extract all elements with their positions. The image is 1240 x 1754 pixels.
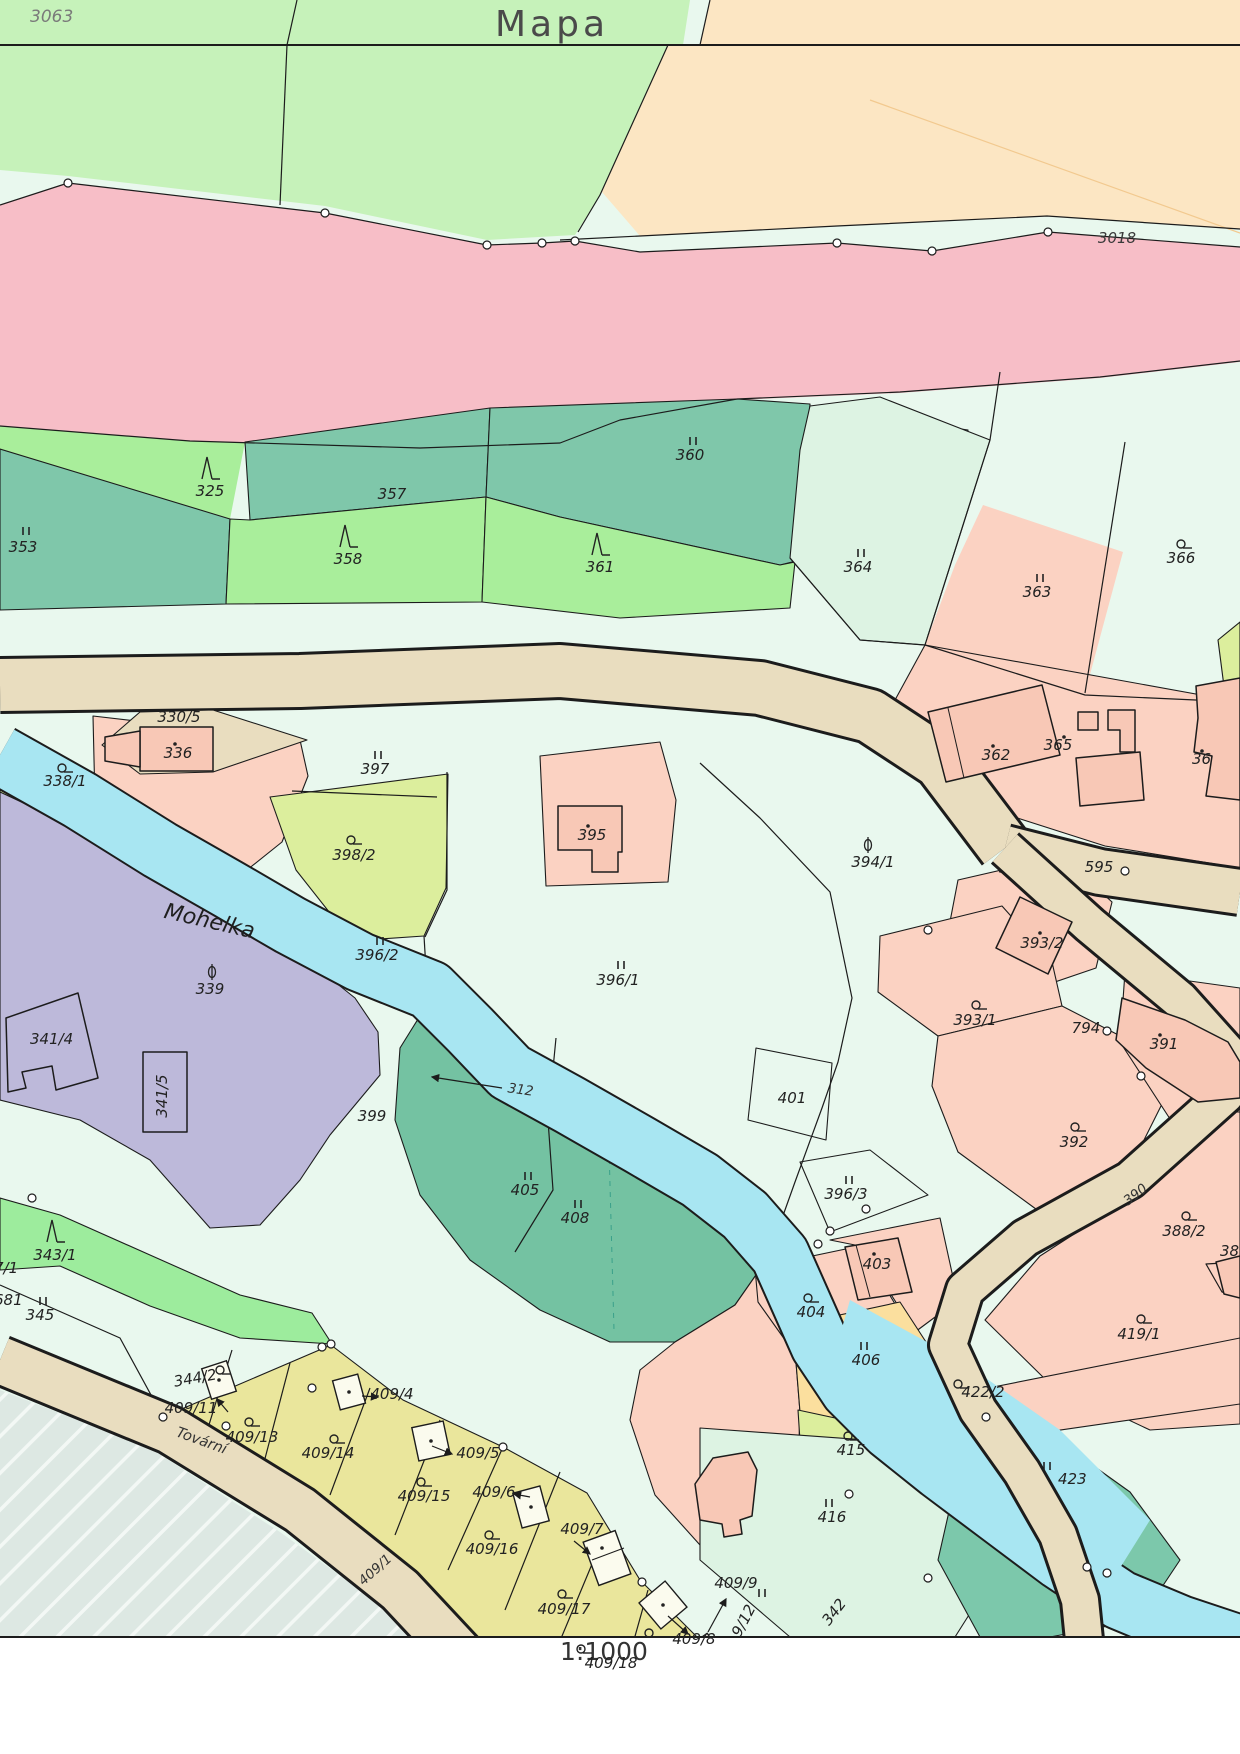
label-36: 36 bbox=[1192, 749, 1211, 768]
label-388: 388 bbox=[1220, 1242, 1240, 1260]
label-text: 409/5 bbox=[456, 1444, 499, 1462]
label-text: 404 bbox=[797, 1303, 826, 1321]
label-text: 409/4 bbox=[370, 1385, 413, 1403]
label-text: 409/7 bbox=[560, 1520, 604, 1538]
label-text: 409/8 bbox=[672, 1630, 715, 1648]
label-330-5: 330/5 bbox=[157, 708, 200, 726]
label-text: 365 bbox=[1044, 736, 1073, 754]
label-text: 401 bbox=[778, 1089, 807, 1107]
label-391: 391 bbox=[1150, 1033, 1179, 1053]
label-text: 396/1 bbox=[596, 971, 639, 989]
label-text: 338/1 bbox=[43, 772, 86, 790]
label-text: 341/4 bbox=[30, 1030, 73, 1048]
cadastral-map-sheet: 3063Mapa30181:10003533253573583603613643… bbox=[0, 0, 1240, 1754]
label-395: 395 bbox=[578, 824, 607, 844]
label-357: 357 bbox=[378, 485, 407, 503]
label-text: 408 bbox=[561, 1209, 590, 1227]
label-text: 595 bbox=[1085, 858, 1114, 876]
label-text: 391 bbox=[1150, 1035, 1179, 1053]
label-Mapa: Mapa bbox=[495, 4, 609, 45]
label-text: 396/3 bbox=[824, 1185, 867, 1203]
label-text: 409/15 bbox=[398, 1487, 451, 1505]
label-399: 399 bbox=[358, 1107, 387, 1125]
label-336: 336 bbox=[164, 742, 193, 762]
label-text: 357 bbox=[378, 485, 407, 503]
label-text: 343/1 bbox=[33, 1246, 76, 1264]
label-text: 361 bbox=[586, 558, 615, 576]
label-text: 325 bbox=[196, 482, 225, 500]
label-409-5: 409/5 bbox=[456, 1444, 499, 1462]
label-text: 363 bbox=[1023, 583, 1052, 601]
label-341-4: 341/4 bbox=[30, 1030, 73, 1048]
building-336-annex bbox=[105, 731, 140, 767]
label-text: 394/1 bbox=[851, 853, 894, 871]
label-text: 409/6 bbox=[472, 1483, 515, 1501]
label-409-7: 409/7 bbox=[560, 1520, 604, 1538]
label-7-1: 7/1 bbox=[0, 1259, 18, 1277]
label-text: 422/2 bbox=[961, 1383, 1004, 1401]
label-text: 341/5 bbox=[153, 1074, 171, 1117]
label-409-6: 409/6 bbox=[472, 1483, 515, 1501]
label-409-9: 409/9 bbox=[714, 1574, 757, 1592]
label-text: 7/1 bbox=[0, 1259, 18, 1277]
label-text: 409/13 bbox=[226, 1428, 279, 1446]
label-text: 681 bbox=[0, 1291, 23, 1309]
label-text: 388 bbox=[1220, 1242, 1240, 1260]
label-text: 358 bbox=[334, 550, 363, 568]
label-text: 403 bbox=[863, 1255, 892, 1273]
map-canvas: 3063Mapa30181:10003533253573583603613643… bbox=[0, 0, 1240, 1754]
label-text: 393/1 bbox=[953, 1011, 996, 1029]
label-393-2: 393/2 bbox=[1020, 931, 1063, 952]
label-text: 419/1 bbox=[1117, 1325, 1160, 1343]
label-text: 423 bbox=[1058, 1470, 1087, 1488]
label-text: 409/16 bbox=[466, 1540, 519, 1558]
label-text: 336 bbox=[164, 744, 193, 762]
label-text: 396/2 bbox=[355, 946, 398, 964]
building-365a bbox=[1078, 712, 1098, 730]
label-text: 366 bbox=[1167, 549, 1196, 567]
label-403: 403 bbox=[863, 1252, 892, 1273]
label-text: 345 bbox=[26, 1306, 55, 1324]
label-text: 393/2 bbox=[1020, 934, 1063, 952]
building-365c bbox=[1076, 752, 1144, 806]
label-text: 409/18 bbox=[585, 1654, 638, 1672]
label-text: 409/9 bbox=[714, 1574, 757, 1592]
label-text: 3063 bbox=[30, 7, 73, 27]
label-409-11: 409/11 bbox=[165, 1399, 218, 1417]
label-text: 409/14 bbox=[302, 1444, 355, 1462]
label-text: 392 bbox=[1060, 1133, 1089, 1151]
label-595: 595 bbox=[1085, 858, 1114, 876]
label-text: 339 bbox=[196, 980, 225, 998]
label-text: 405 bbox=[511, 1181, 540, 1199]
label-text: 406 bbox=[852, 1351, 881, 1369]
label-365: 365 bbox=[1044, 735, 1073, 754]
label-text: 794 bbox=[1072, 1019, 1101, 1037]
label-text: 397 bbox=[361, 760, 390, 778]
label-text: 388/2 bbox=[1162, 1222, 1205, 1240]
label-401: 401 bbox=[778, 1089, 807, 1107]
label-text: 409/17 bbox=[538, 1600, 591, 1618]
label-409-4: 409/4 bbox=[370, 1385, 413, 1403]
label-362: 362 bbox=[982, 744, 1011, 764]
label-text: 416 bbox=[818, 1508, 847, 1526]
label-422-2: 422/2 bbox=[954, 1380, 1005, 1401]
label-text: 409/11 bbox=[165, 1399, 218, 1417]
label-3063: 3063 bbox=[30, 7, 73, 27]
label-681: 681 bbox=[0, 1291, 23, 1309]
label-text: 364 bbox=[844, 558, 873, 576]
label-text: 360 bbox=[676, 446, 705, 464]
label-text: 362 bbox=[982, 746, 1011, 764]
label-text: Mapa bbox=[495, 4, 609, 45]
label-text: 36 bbox=[1192, 750, 1211, 768]
label-3018: 3018 bbox=[1098, 229, 1136, 247]
label-text: 353 bbox=[9, 538, 38, 556]
label-text: 3018 bbox=[1098, 229, 1136, 247]
label-text: 330/5 bbox=[157, 708, 200, 726]
label-text: 415 bbox=[837, 1441, 866, 1459]
label-text: 398/2 bbox=[332, 846, 375, 864]
label-text: 395 bbox=[578, 826, 607, 844]
label-text: 399 bbox=[358, 1107, 387, 1125]
label-341-5: 341/5 bbox=[153, 1074, 171, 1117]
label-794: 794 bbox=[1072, 1019, 1101, 1037]
